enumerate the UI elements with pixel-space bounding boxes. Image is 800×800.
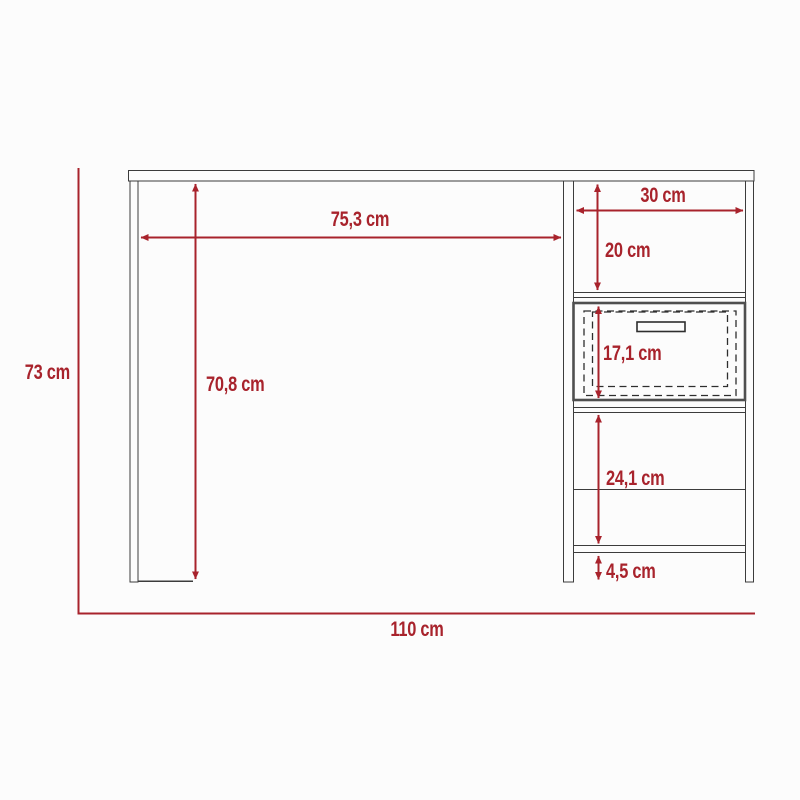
dim-label-worktop-width: 75,3 cm (282, 209, 438, 230)
dim-label-drawer-height: 17,1 cm (603, 343, 661, 364)
desk-drawing (0, 0, 800, 800)
desk-top-panel (129, 171, 755, 182)
dim-label-overall-width: 110 cm (339, 619, 495, 640)
dim-label-under-desk-height: 70,8 cm (206, 374, 264, 395)
dimension-diagram: 73 cm 110 cm 75,3 cm 70,8 cm 30 cm 20 cm… (0, 0, 800, 800)
pedestal-left-panel (564, 181, 574, 582)
dim-label-lower-compartment: 24,1 cm (606, 468, 664, 489)
drawer-handle (637, 322, 685, 332)
dim-label-pedestal-width: 30 cm (585, 185, 741, 206)
dim-label-top-compartment: 20 cm (605, 240, 650, 261)
dim-label-bottom-clearance: 4,5 cm (606, 561, 656, 582)
dim-label-overall-height: 73 cm (8, 362, 70, 383)
left-leg-panel (130, 181, 138, 582)
right-leg-panel (746, 181, 754, 582)
